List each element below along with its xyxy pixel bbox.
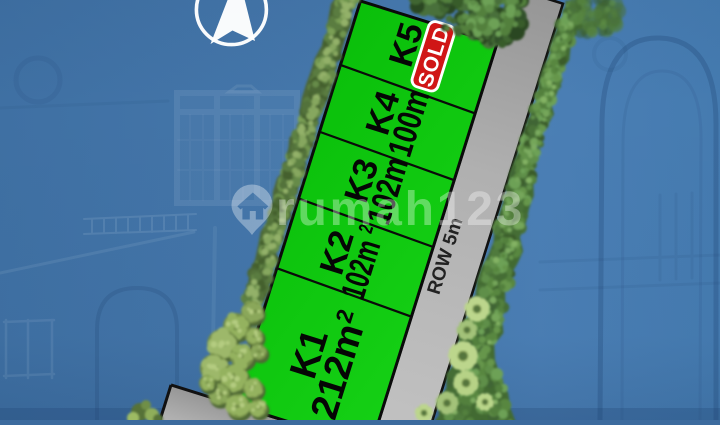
svg-text:rumah123: rumah123	[276, 183, 525, 236]
